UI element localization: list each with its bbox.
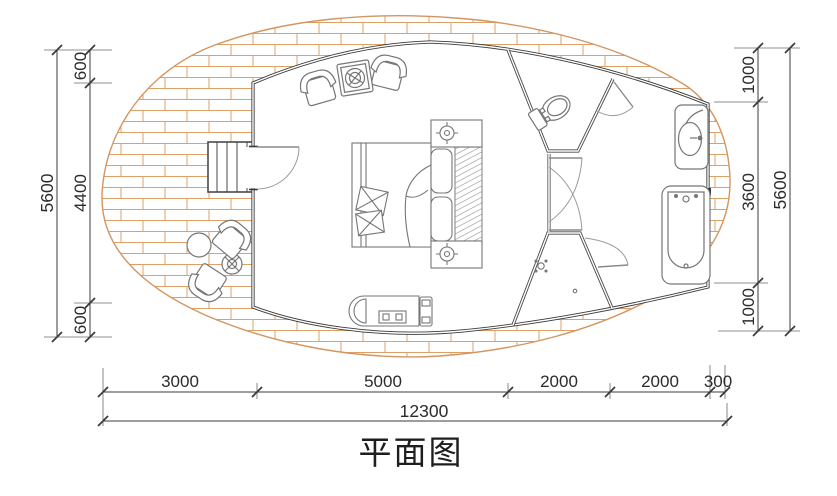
nightstand-with-lamp-top (431, 120, 482, 147)
dim-bottom-2000-a: 2000 (540, 372, 578, 391)
dim-left-4400: 4400 (71, 174, 90, 212)
dim-left-600-bottom: 600 (71, 306, 90, 334)
dim-bottom-3000: 3000 (161, 372, 199, 391)
dim-right-total-5600: 5600 (770, 170, 790, 209)
plant-side-table (337, 60, 374, 97)
dim-bottom-5000: 5000 (364, 372, 402, 391)
dim-left-600-top: 600 (71, 52, 90, 80)
nightstand-with-lamp-bottom (431, 241, 482, 268)
throw-pillows (356, 186, 389, 235)
dim-bottom-total-12300: 12300 (400, 401, 449, 421)
dim-right-3600: 3600 (739, 173, 758, 211)
floor-plan-page: 600 4400 600 5600 1000 3600 1000 5600 (0, 0, 837, 496)
bathtub (662, 186, 710, 284)
dim-left-total-5600: 5600 (37, 173, 57, 212)
dim-bottom-2000-b: 2000 (641, 372, 679, 391)
dim-right-1000-bottom: 1000 (739, 288, 758, 326)
round-table (187, 233, 211, 257)
bench-unit (349, 296, 432, 326)
dim-right-1000-top: 1000 (739, 56, 758, 94)
washbasin (675, 105, 708, 169)
drawing-title: 平面图 (359, 434, 464, 471)
headboard-rug (455, 147, 482, 241)
floor-plan-drawing: 600 4400 600 5600 1000 3600 1000 5600 (0, 0, 837, 496)
dim-bottom-300: 300 (704, 372, 732, 391)
